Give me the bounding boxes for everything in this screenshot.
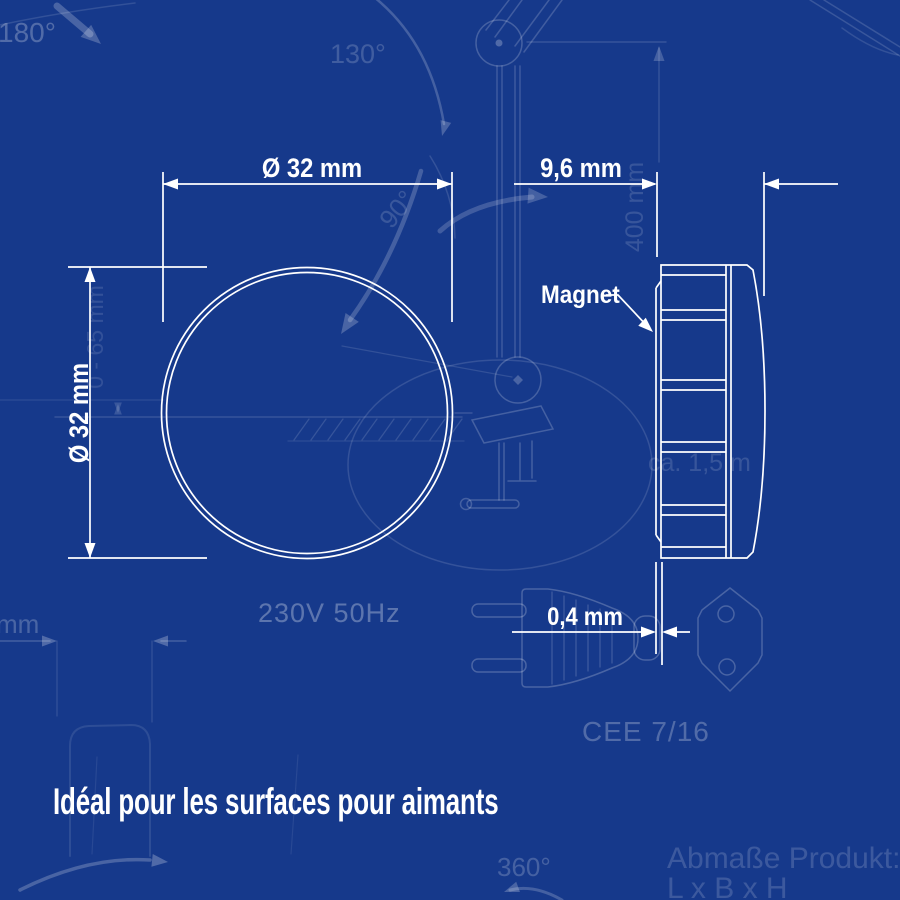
swivel-arrow-left [20, 860, 150, 890]
blueprint-infographic: 180° 130° 400 mm 90° [0, 0, 900, 900]
reach-dim-label: 400 mm [621, 162, 649, 252]
dim-depth-label: 9,6 mm [540, 154, 622, 184]
plug-hole-bottom [719, 659, 735, 675]
plug-face [698, 588, 762, 691]
front-view-circle [162, 268, 453, 559]
reach-dimension: 400 mm [527, 42, 666, 252]
side-view-outline [656, 265, 765, 558]
power-rating-label: 230V 50Hz [258, 598, 401, 628]
dim-plate-thickness: 0,4 mm [512, 562, 690, 665]
diagram-canvas: 180° 130° 400 mm 90° [0, 0, 900, 900]
caption-text: Idéal pour les surfaces pour aimants [53, 781, 498, 823]
dim-diameter-horizontal: Ø 32 mm [163, 154, 452, 322]
plug-pin-bottom [472, 659, 526, 672]
dim-diameter-vertical-label: Ø 32 mm [65, 363, 95, 463]
product-dims-label: Abmaße Produkt: [667, 842, 900, 875]
swivel-arrow-360-head [502, 882, 520, 897]
rotation-ellipse [348, 360, 652, 570]
arm-joint-pivot [496, 40, 503, 47]
edge-dimension: mm [0, 609, 186, 722]
swing-arc-head [437, 120, 452, 137]
angle-360-label: 360° [497, 852, 551, 882]
product-dims-formula: L x B x H [667, 872, 788, 900]
upper-arm-segment [810, 0, 900, 56]
bend-arrow-head [334, 313, 358, 339]
dim-plate-thickness-label: 0,4 mm [547, 603, 623, 631]
swivel-arrow-left-head [151, 854, 168, 868]
plug-hole-top [718, 606, 734, 622]
plug-pin-top [472, 604, 526, 617]
bend-arrow [350, 171, 421, 320]
dim-diameter-horizontal-label: Ø 32 mm [262, 154, 362, 184]
edge-text-fragment: mm [0, 609, 39, 639]
angle-180-label: 180° [0, 17, 56, 48]
cable-length-label: ca. 1,5 m [648, 449, 751, 477]
flex-arrow-head [527, 188, 548, 205]
table-hatch [55, 417, 464, 441]
angle-130-label: 130° [330, 39, 386, 69]
plug-standard-label: CEE 7/16 [582, 716, 710, 747]
desk-clamp [455, 357, 553, 510]
magnet-callout: Magnet [541, 281, 657, 336]
clamp-joint-pivot [513, 375, 523, 385]
